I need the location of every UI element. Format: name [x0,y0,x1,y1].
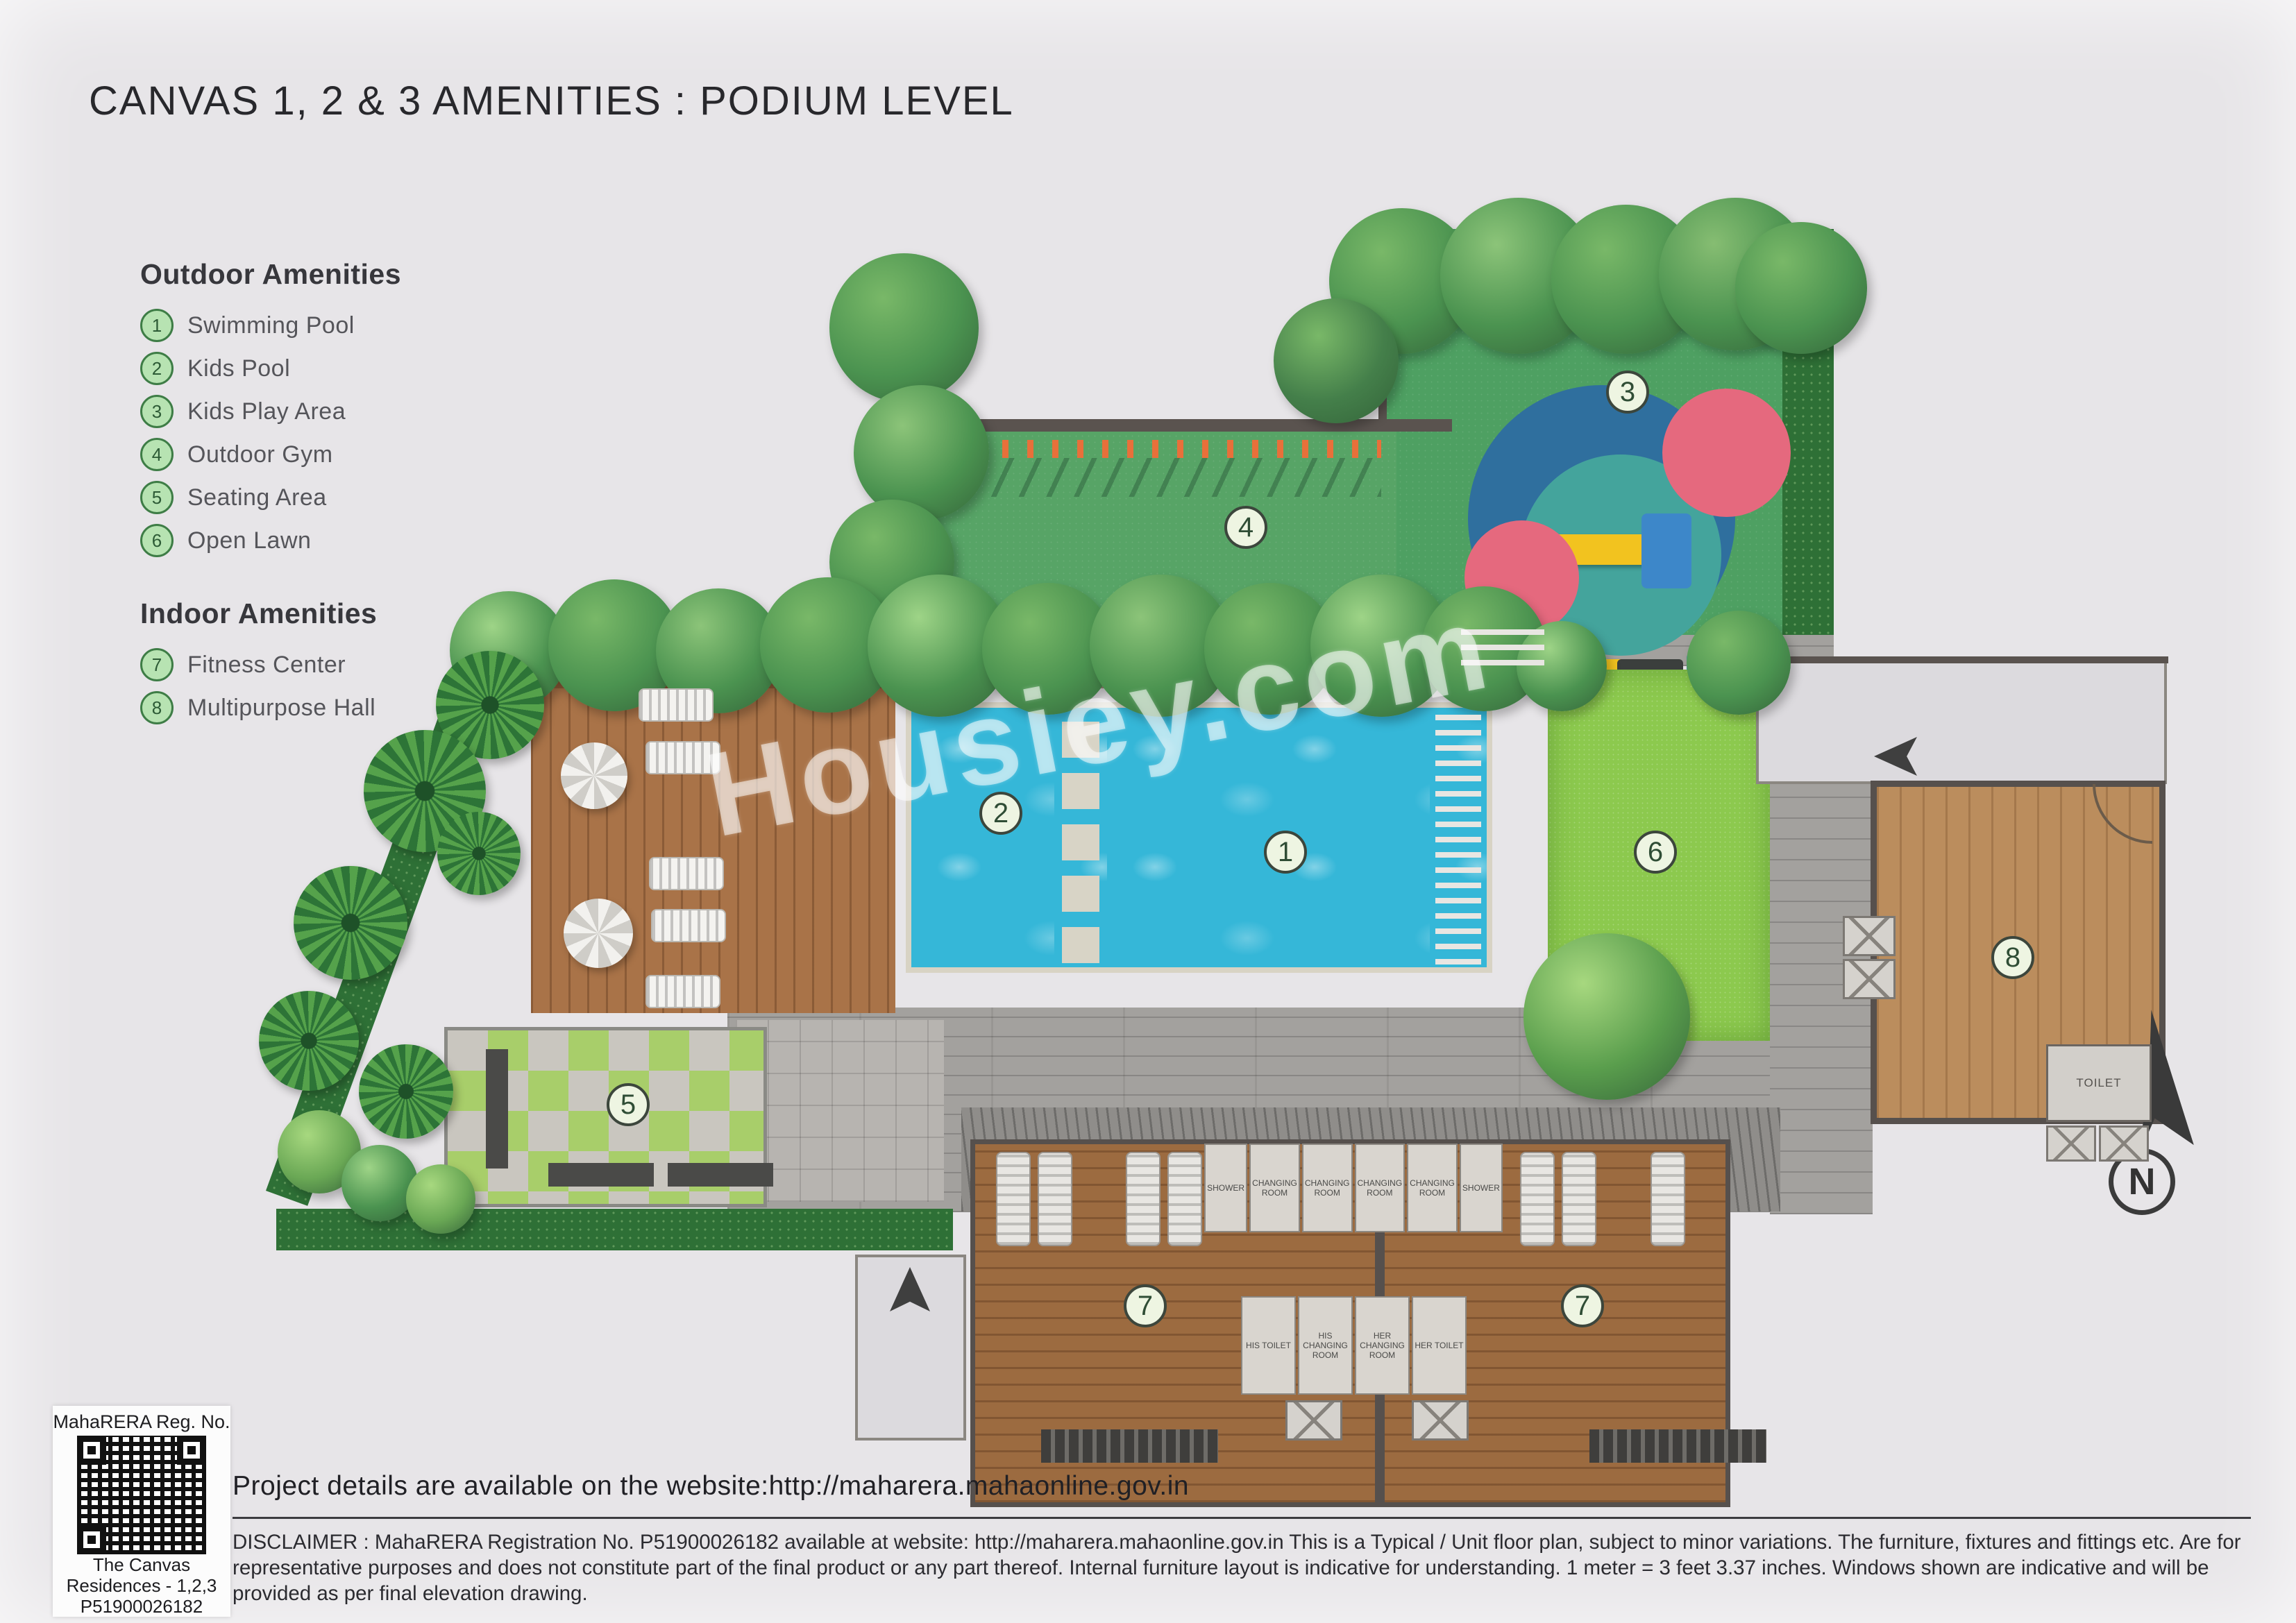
tree [1274,298,1399,423]
qr-project-name-line2: Residences - 1,2,3 [67,1575,217,1596]
kids-pool [911,708,1054,967]
legend-label: Outdoor Gym [187,441,333,468]
legend-num: 2 [140,352,174,385]
legend-outdoor-heading: Outdoor Amenities [140,258,557,291]
legend-label: Kids Pool [187,355,290,382]
tree [854,385,989,520]
hall-lift [2099,1125,2149,1162]
treadmill [1651,1152,1685,1246]
bench [668,1163,773,1187]
pool-complex [906,702,1492,973]
fitness-shaft [1412,1400,1469,1441]
legend-item-outdoor-gym: 4 Outdoor Gym [140,438,557,471]
amenity-marker-7: 7 [1124,1284,1167,1327]
bush [406,1164,475,1234]
hall-service-shaft [1843,959,1896,999]
legend-item-open-lawn: 6 Open Lawn [140,524,557,557]
legend-num: 6 [140,524,174,557]
stepping-stone-channel [1054,708,1107,967]
gym-equipment-row [1589,1429,1766,1463]
treadmill [1562,1152,1596,1246]
treadmill [1520,1152,1555,1246]
fitness-shaft [1285,1400,1342,1441]
legend-num: 1 [140,309,174,342]
north-label: N [2129,1160,2156,1203]
shower-room: SHOWER [1460,1144,1503,1232]
treadmill [996,1152,1031,1246]
amenity-marker-4: 4 [1224,506,1267,549]
footer-divider [233,1517,2251,1519]
palm-tree [359,1044,453,1139]
legend-item-kids-pool: 2 Kids Pool [140,352,557,385]
qr-reg-number: P51900026182 [81,1596,203,1617]
legend-item-swimming-pool: 1 Swimming Pool [140,309,557,342]
treadmill [1126,1152,1160,1246]
amenities-plan-page: CANVAS 1, 2 & 3 AMENITIES : PODIUM LEVEL… [0,0,2296,1623]
his-changing-room: HIS CHANGING ROOM [1298,1296,1353,1395]
her-changing-room: HER CHANGING ROOM [1355,1296,1410,1395]
palm-tree [437,812,521,895]
stepping-stones [1062,712,1099,963]
changing-room: CHANGING ROOM [1355,1144,1406,1232]
playground-tower-1 [1641,513,1691,588]
amenity-marker-2: 2 [979,792,1022,835]
palm-tree [294,866,407,980]
palm-tree [259,991,359,1091]
sun-lounger [645,741,720,774]
tree [1735,222,1867,354]
bush [341,1145,418,1221]
legend-num: 7 [140,648,174,681]
changing-room: CHANGING ROOM [1249,1144,1300,1232]
lawn-tree [1523,933,1690,1100]
disclaimer-text: DISCLAIMER : MahaRERA Registration No. P… [233,1529,2251,1606]
amenity-marker-6: 6 [1634,831,1677,874]
legend-item-kids-play-area: 3 Kids Play Area [140,395,557,428]
lobby-top-wall [1755,656,2168,663]
qr-project-name-line1: The Canvas [93,1554,190,1575]
bench [548,1163,654,1187]
gym-equipment-row [1041,1429,1218,1463]
shower-room: SHOWER [1204,1144,1247,1232]
amenity-marker-7: 7 [1561,1284,1604,1327]
legend-num: 4 [140,438,174,471]
hall-lobby [1756,659,2167,784]
hall-lift [2046,1125,2096,1162]
qr-finder-icon [77,1525,106,1554]
her-toilet: HER TOILET [1412,1296,1467,1395]
pool-step-lines [1435,711,1481,965]
qr-finder-icon [177,1436,206,1465]
sun-lounger [651,909,726,942]
sun-lounger [649,857,724,890]
changing-room: CHANGING ROOM [1302,1144,1353,1232]
maharera-qr-box: MahaRERA Reg. No. The Canvas Residences … [53,1406,230,1617]
legend-num: 8 [140,691,174,724]
sun-lounger [639,688,714,722]
bush [1687,611,1791,715]
hall-service-shaft [1843,916,1896,956]
legend-label: Swimming Pool [187,312,355,339]
play-area-steps [1461,628,1544,665]
deck-umbrella [564,899,633,968]
amenity-marker-1: 1 [1264,831,1307,874]
sun-lounger [645,975,720,1008]
his-toilet: HIS TOILET [1241,1296,1296,1395]
tree [829,253,979,402]
legend-label: Seating Area [187,484,327,511]
project-details-line: Project details are available on the web… [233,1471,1189,1502]
legend-label: Fitness Center [187,652,346,679]
bench [486,1049,508,1169]
toilet-strip: HIS TOILET HIS CHANGING ROOM HER CHANGIN… [1241,1296,1467,1395]
deck-umbrella [561,742,627,809]
treadmill [1167,1152,1202,1246]
changing-room-strip: SHOWER CHANGING ROOM CHANGING ROOM CHANG… [1204,1144,1503,1232]
legend-label: Open Lawn [187,527,311,554]
changing-room: CHANGING ROOM [1407,1144,1458,1232]
amenity-marker-3: 3 [1606,371,1649,414]
qr-heading: MahaRERA Reg. No. [53,1411,230,1433]
play-pink-circle-1 [1662,389,1791,517]
toilet-label: TOILET [2076,1076,2121,1090]
amenity-marker-5: 5 [607,1083,650,1126]
legend-label: Multipurpose Hall [187,695,375,722]
legend-num: 5 [140,481,174,514]
legend-num: 3 [140,395,174,428]
pool-steps [1430,708,1487,967]
qr-finder-icon [77,1436,106,1465]
legend-item-seating-area: 5 Seating Area [140,481,557,514]
qr-code [77,1436,206,1554]
hall-toilet-room: TOILET [2046,1044,2152,1122]
amenity-marker-8: 8 [1991,936,2034,979]
page-title: CANVAS 1, 2 & 3 AMENITIES : PODIUM LEVEL [89,78,1014,124]
legend-label: Kids Play Area [187,398,346,425]
treadmill [1038,1152,1072,1246]
